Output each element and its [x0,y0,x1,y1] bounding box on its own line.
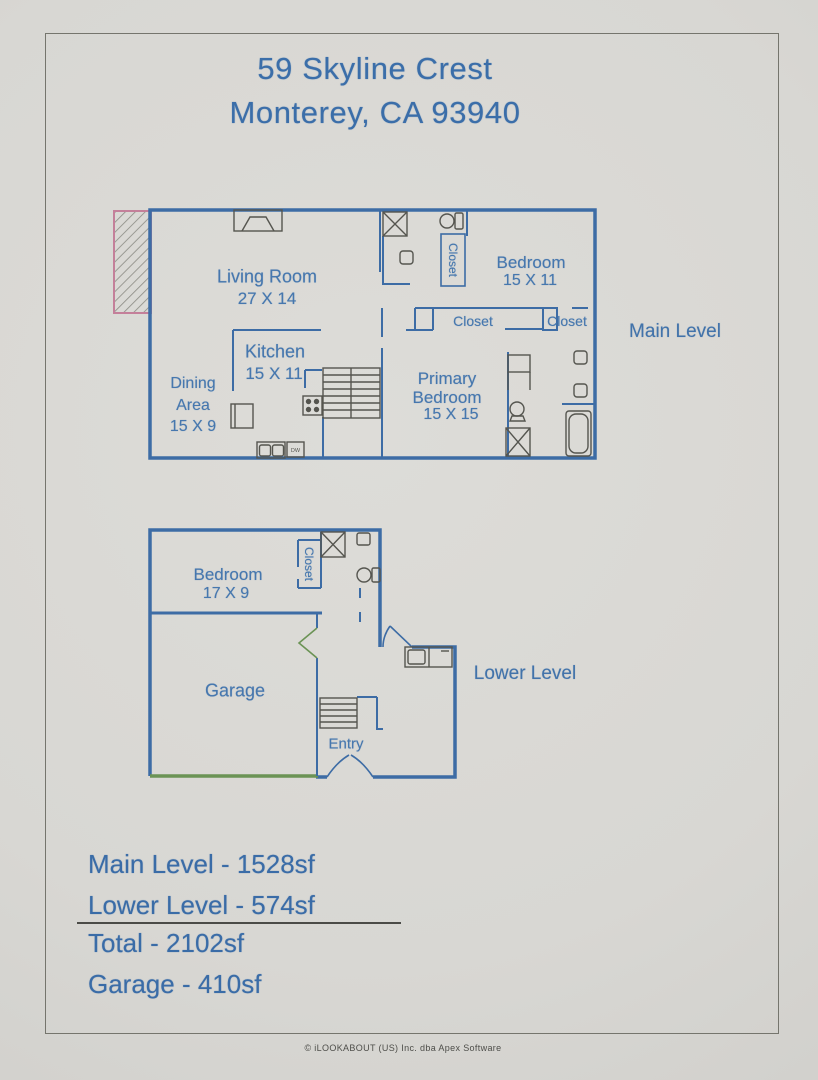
lower-shower-icon [321,532,345,557]
vanity-sink-icon [574,384,587,397]
main-level-label: Main Level [629,321,721,343]
lower-closet-label: Closet [302,547,316,581]
cabinet-icon [231,404,253,428]
kitchen-dims: 15 X 11 [245,364,302,384]
copyright-footer: © iLOOKABOUT (US) Inc. dba Apex Software [0,1043,806,1053]
entry-double-door [327,755,373,777]
bath-closet-label: Closet [446,243,460,277]
living-room-dims: 27 X 14 [238,289,297,309]
linen-closet-icon [508,355,530,390]
toilet-icon [440,213,463,229]
lower-bedroom-label: Bedroom [194,565,263,585]
summary-garage: Garage - 410sf [88,968,261,1000]
main-outer-walls [150,210,595,458]
dishwasher-icon: DW [287,442,304,457]
main-interior-walls [233,210,595,458]
shower-icon [383,212,407,236]
floor-plan-page: 59 Skyline Crest Monterey, CA 93940 [0,0,818,1080]
kitchen-label: Kitchen [245,342,305,363]
primary-bedroom-dims: 15 X 15 [423,406,478,424]
hatched-deck [114,211,151,313]
kitchen-sink-icon [257,442,285,458]
washer-dryer-icon [405,647,452,667]
door-symbols [327,626,412,777]
dining-area-label: Dining [170,375,215,393]
lower-level-label: Lower Level [474,663,576,685]
primary-shower-icon [506,428,530,456]
dining-area-dims: 15 X 9 [170,418,216,436]
hall-closet-right-label: Closet [547,313,587,329]
bathtub-icon [566,411,591,456]
stove-icon [303,396,322,415]
hall-closet-left-label: Closet [453,313,493,329]
entry-label: Entry [328,736,363,753]
lower-sink-icon [357,533,370,545]
lower-toilet-icon [357,568,380,582]
bedroom-dims: 15 X 11 [503,272,557,290]
summary-lower-level: Lower Level - 574sf [88,889,315,921]
garage-door-marks [299,628,317,658]
primary-toilet-icon [510,402,525,421]
summary-divider [77,922,401,924]
garage-label: Garage [205,681,265,702]
summary-total: Total - 2102sf [88,927,244,959]
vanity-sink-icon [574,351,587,364]
lower-stairs-icon [320,698,357,728]
dining-area-label2: Area [176,397,210,415]
fireplace-icon [234,210,282,231]
living-room-label: Living Room [217,267,317,288]
stairs-icon [323,368,380,418]
bedroom-label: Bedroom [497,253,566,273]
utility-door-arc [383,626,412,647]
summary-main-level: Main Level - 1528sf [88,848,315,880]
primary-bedroom-label: Primary [418,369,477,389]
main-fixtures: DW [231,210,591,458]
lower-bedroom-dims: 17 X 9 [203,585,249,603]
sink-icon [400,251,413,264]
svg-text:DW: DW [291,448,301,454]
lower-fixtures [320,532,452,728]
primary-bedroom-label2: Bedroom [413,388,482,408]
